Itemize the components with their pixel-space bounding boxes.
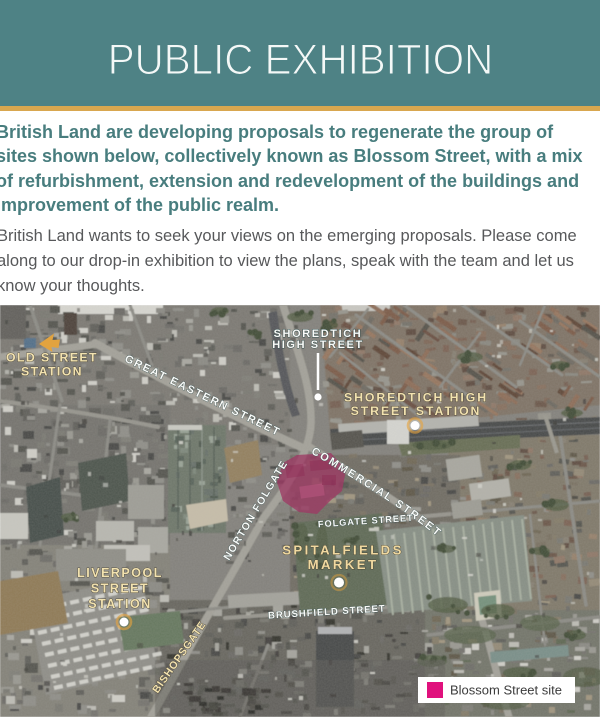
svg-text:SHOREDTICH HIGH: SHOREDTICH HIGH xyxy=(344,391,488,405)
svg-text:Blossom Street site: Blossom Street site xyxy=(450,683,562,698)
svg-text:STREET STATION: STREET STATION xyxy=(351,404,482,418)
svg-text:LIVERPOOL: LIVERPOOL xyxy=(77,566,163,580)
svg-text:OLD STREET: OLD STREET xyxy=(6,351,98,365)
svg-text:STATION: STATION xyxy=(88,597,152,611)
svg-text:MARKET: MARKET xyxy=(308,557,379,572)
svg-text:STATION: STATION xyxy=(21,365,83,379)
svg-text:HIGH STREET: HIGH STREET xyxy=(272,339,364,351)
svg-text:SPITALFIELDS: SPITALFIELDS xyxy=(282,543,404,558)
svg-text:STREET: STREET xyxy=(91,582,149,596)
